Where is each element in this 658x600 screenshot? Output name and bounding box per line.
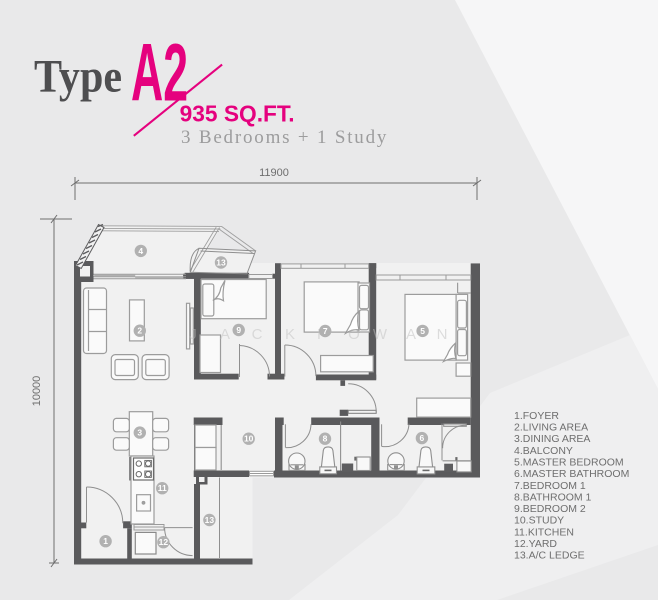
svg-text:13: 13 [205, 515, 215, 525]
svg-text:A: A [406, 326, 416, 343]
svg-text:6: 6 [420, 433, 425, 443]
svg-text:J: J [189, 326, 197, 343]
svg-text:3: 3 [137, 428, 142, 438]
svg-text:5.MASTER BEDROOM: 5.MASTER BEDROOM [514, 456, 624, 468]
svg-text:C: C [252, 326, 263, 343]
svg-text:10.STUDY: 10.STUDY [514, 515, 564, 527]
svg-text:K: K [285, 326, 295, 343]
svg-text:N: N [437, 326, 448, 343]
svg-text:10000: 10000 [31, 376, 43, 407]
svg-text:7.BEDROOM 1: 7.BEDROOM 1 [514, 480, 586, 492]
svg-text:11.KITCHEN: 11.KITCHEN [514, 526, 574, 538]
svg-text:1: 1 [103, 536, 108, 546]
svg-text:3.DINING AREA: 3.DINING AREA [514, 433, 590, 445]
svg-text:A: A [220, 326, 230, 343]
svg-text:2: 2 [137, 326, 142, 336]
svg-text:7: 7 [323, 326, 328, 336]
svg-text:4.BALCONY: 4.BALCONY [514, 445, 573, 457]
svg-text:13.A/C LEDGE: 13.A/C LEDGE [514, 550, 585, 562]
svg-text:6.MASTER BATHROOM: 6.MASTER BATHROOM [514, 468, 629, 480]
svg-text:2.LIVING AREA: 2.LIVING AREA [514, 422, 588, 434]
svg-text:1.FOYER: 1.FOYER [514, 410, 559, 422]
svg-text:11: 11 [158, 483, 167, 493]
svg-text:12.YARD: 12.YARD [514, 538, 557, 550]
svg-text:Type: Type [34, 50, 122, 102]
svg-text:8.BATHROOM 1: 8.BATHROOM 1 [514, 491, 592, 503]
svg-text:12: 12 [159, 537, 169, 547]
svg-text:9: 9 [236, 325, 241, 335]
svg-text:9.BEDROOM 2: 9.BEDROOM 2 [514, 503, 586, 515]
svg-text:3 Bedrooms + 1 Study: 3 Bedrooms + 1 Study [181, 127, 388, 148]
svg-text:13: 13 [216, 258, 226, 268]
svg-text:O: O [348, 326, 360, 343]
svg-text:11900: 11900 [259, 167, 289, 179]
svg-text:8: 8 [323, 434, 328, 444]
svg-text:5: 5 [420, 326, 425, 336]
svg-text:935 SQ.FT.: 935 SQ.FT. [180, 100, 295, 126]
svg-text:4: 4 [138, 246, 143, 256]
svg-text:10: 10 [244, 434, 254, 444]
svg-text:W: W [373, 326, 388, 343]
